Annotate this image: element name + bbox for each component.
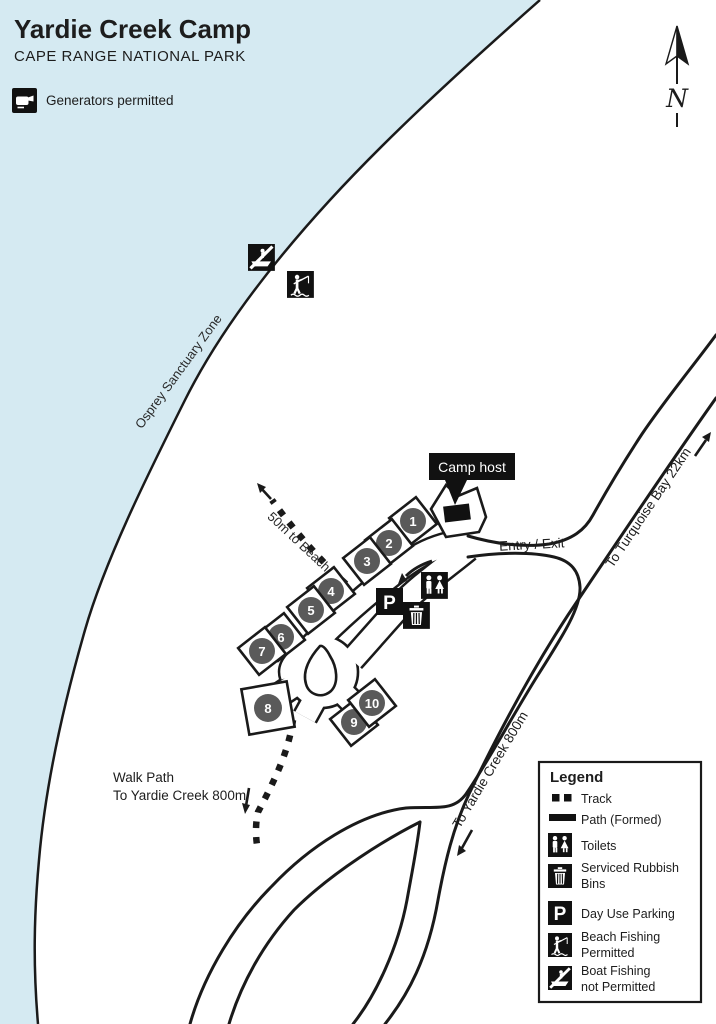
svg-text:Path (Formed): Path (Formed) [581,813,662,827]
legend-title: Legend [550,769,603,786]
fork-inner-main-line [353,822,420,1024]
boat-fishing-icon [548,966,572,990]
north-arrow-right-half [677,26,688,64]
entry-exit-label: Entry / Exit [499,535,565,553]
svg-text:1: 1 [409,514,416,529]
rubbish-bin-icon [403,602,430,629]
svg-text:Bins: Bins [581,877,605,891]
to-turquoise-label: To Turquoise Bay 22km [603,445,694,570]
map-page: Yardie Creek Camp CAPE RANGE NATIONAL PA… [0,0,716,1024]
page-subtitle: CAPE RANGE NATIONAL PARK [14,48,246,65]
to-yardie-arrow [457,830,472,856]
svg-text:10: 10 [365,696,379,711]
walk-path-label-line1: Walk Path [113,770,174,785]
main-road-west-line [468,335,716,545]
track-icon [552,794,560,802]
svg-text:Serviced Rubbish: Serviced Rubbish [581,861,679,875]
beach-fishing-icon [548,933,572,957]
svg-text:9: 9 [350,715,357,730]
svg-text:P: P [554,904,567,925]
generator-icon [12,88,37,113]
beach-fishing-permitted-icon [287,271,314,298]
svg-text:Toilets: Toilets [581,839,616,853]
north-arrow: N [665,26,689,127]
to-yardie-road-label: To Yardie Creek 800m [449,709,530,831]
svg-text:P: P [383,593,396,614]
boat-fishing-not-permitted-icon [248,244,275,271]
svg-text:2: 2 [385,536,392,551]
campsite-8: 8 [241,681,294,734]
toilets-icon [421,572,448,599]
page-title: Yardie Creek Camp [14,14,251,44]
svg-text:3: 3 [363,554,370,569]
svg-text:Permitted: Permitted [581,946,635,960]
day-use-parking-icon: P [548,901,572,925]
walk-path-track [242,720,293,845]
svg-text:5: 5 [307,603,314,618]
svg-text:Boat Fishing: Boat Fishing [581,964,651,978]
north-label: N [665,84,689,113]
to-turquoise-arrow [695,432,711,456]
legend: Legend Track Path (Formed) Toilets Servi… [539,762,701,1002]
svg-text:Day Use Parking: Day Use Parking [581,907,675,921]
beach-track-label: 50m to Beach [265,509,334,575]
generators-note-label: Generators permitted [46,93,174,108]
svg-text:8: 8 [264,701,271,716]
camp-host-site [443,503,471,522]
walk-path-label-line2: To Yardie Creek 800m [113,788,246,803]
north-arrow-left-half [666,26,677,64]
svg-text:Track: Track [581,792,613,806]
camp-host-label: Camp host [438,459,506,475]
toilets-icon [548,833,572,857]
svg-text:Beach Fishing: Beach Fishing [581,930,660,944]
camp-map: Yardie Creek Camp CAPE RANGE NATIONAL PA… [0,0,716,1024]
rubbish-bins-icon [548,864,572,888]
path-formed-icon [549,814,576,821]
svg-text:4: 4 [327,584,335,599]
day-use-parking-icon: P [376,588,403,615]
svg-text:7: 7 [258,644,265,659]
fork-inner-branch-line [229,822,420,1024]
svg-text:not Permitted: not Permitted [581,980,655,994]
